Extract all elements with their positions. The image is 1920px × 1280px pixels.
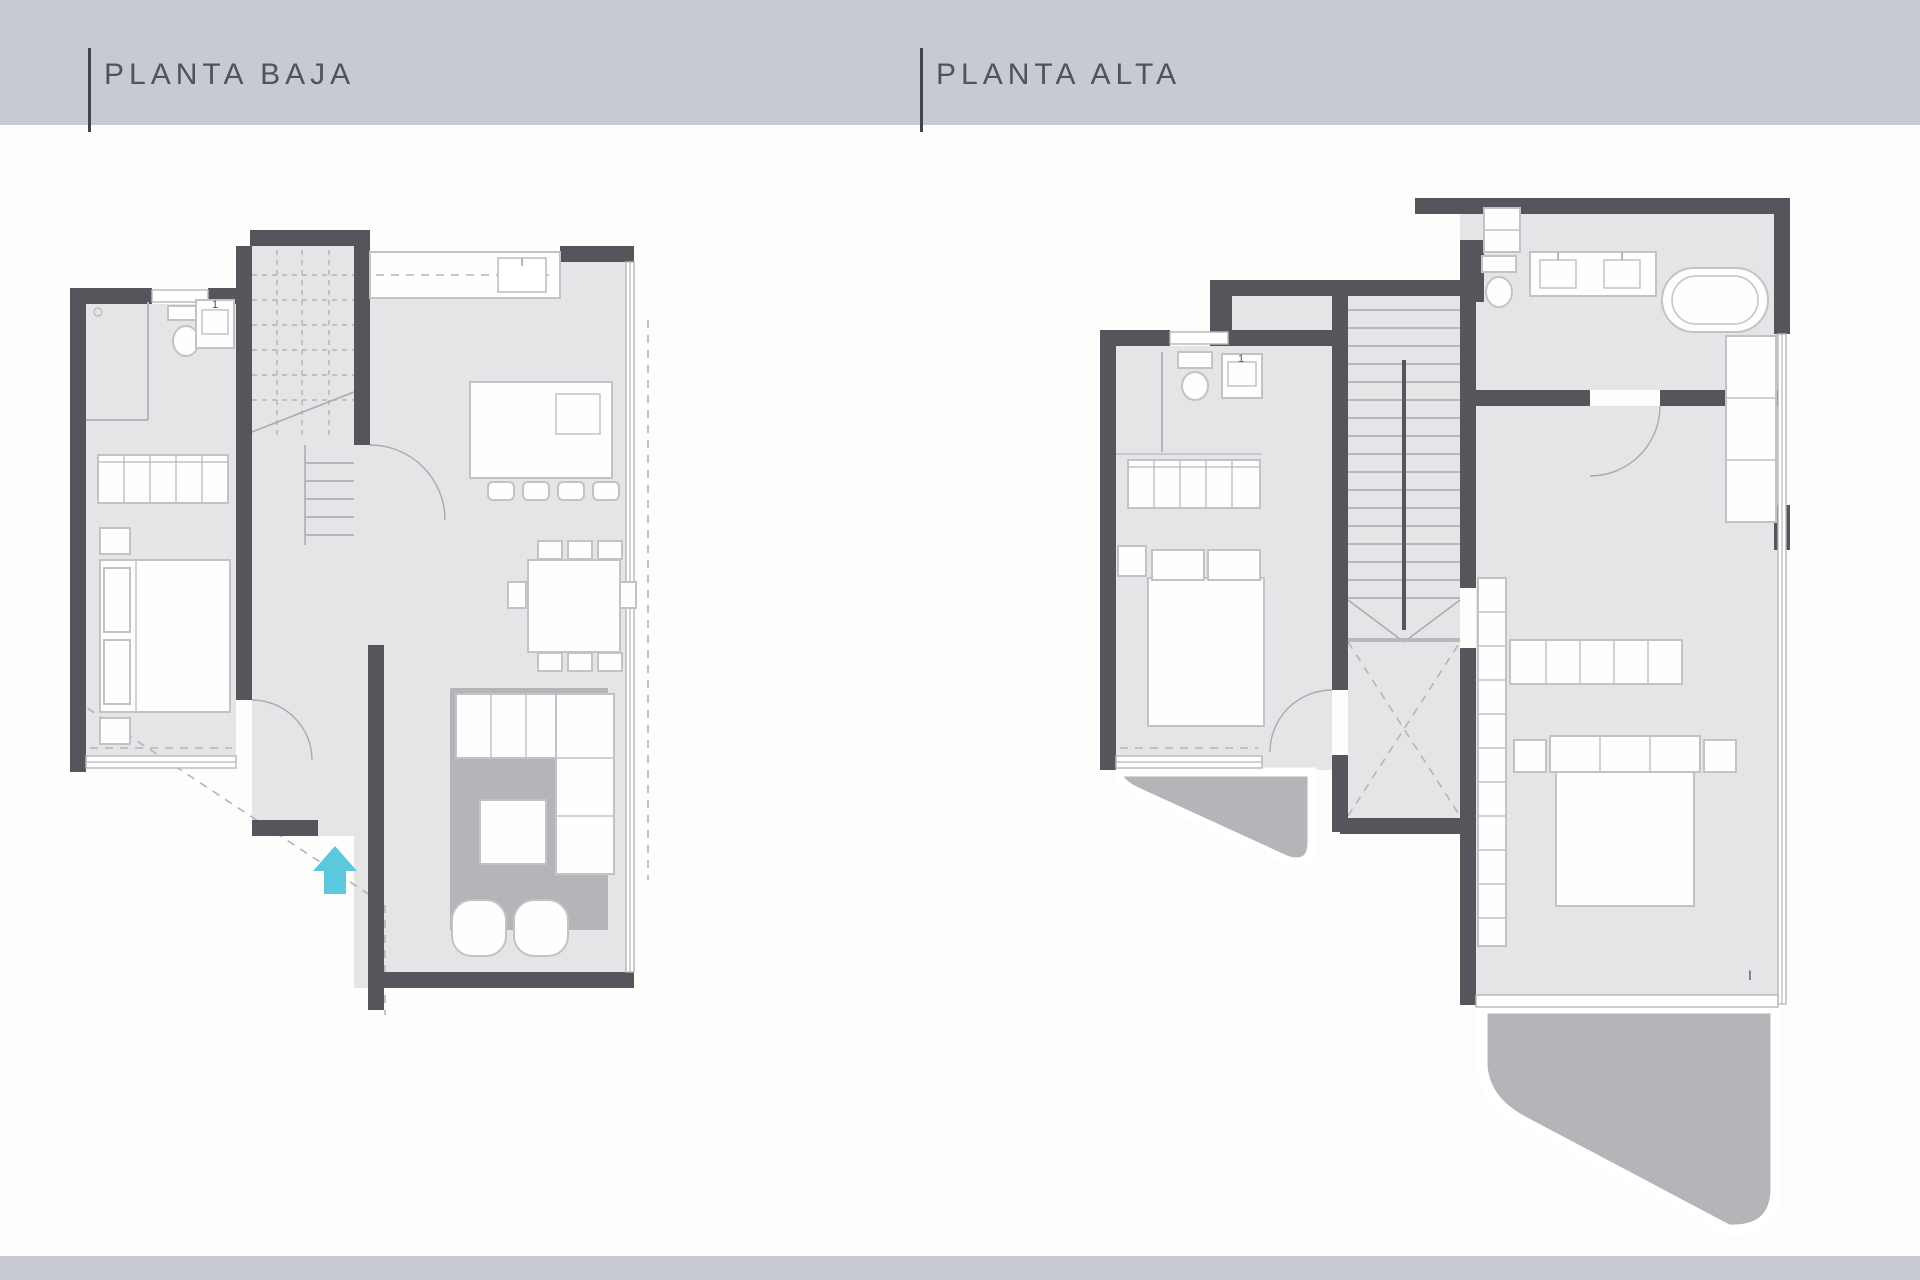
window-marker: I — [1748, 967, 1752, 983]
plan-upper-floor: I — [1100, 198, 1790, 1230]
living-area — [450, 688, 614, 956]
plan-ground-floor: 1 — [70, 230, 648, 1015]
terrace-small — [1118, 772, 1312, 862]
sink-faucet-mark-upper: 1 — [1238, 353, 1244, 365]
bedroom-ground — [100, 528, 230, 744]
sink-faucet-mark: 1 — [212, 299, 218, 311]
entrance-arrow-icon — [313, 846, 357, 894]
floorplans-drawing: 1 — [0, 0, 1920, 1280]
dining-table — [508, 541, 636, 671]
terrace-master — [1482, 1008, 1776, 1230]
kitchen-counter — [370, 252, 560, 298]
kitchen-island — [470, 382, 619, 500]
wardrobe-ground — [98, 455, 228, 503]
floorplan-sheet: PLANTA BAJA PLANTA ALTA — [0, 0, 1920, 1280]
